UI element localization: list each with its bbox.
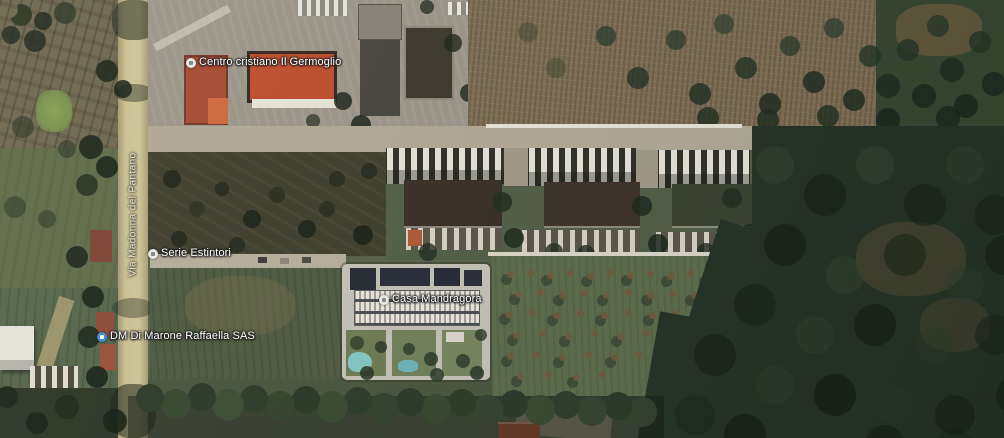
gray-building [358,4,402,40]
poi-casa-mandragora[interactable]: Casa Mandragora [379,293,482,306]
dry-brush-patch [856,222,966,296]
swimming-pool [348,352,372,372]
navy-roof [350,268,376,290]
row-house [404,180,502,228]
farm-building [90,230,112,262]
camper-parking-row [658,150,750,188]
store-icon-glyph [100,335,104,339]
scrubland [468,0,888,138]
poi-label: DM Di Marone Raffaella SAS [110,330,255,343]
tree-cluster [342,264,352,274]
orange-shed [408,230,422,246]
camper-parking-row [528,148,636,186]
white-awning [252,99,336,108]
dark-building [404,26,454,100]
white-patio [446,332,464,342]
parked-cars [258,257,267,263]
road-name-label: Via Madonna del Pantano [128,145,139,285]
tree-shadow [112,298,154,318]
boundary-wall [486,124,742,128]
tree-grove [0,388,118,438]
navy-roof [380,268,430,286]
field-left-middle [0,148,120,290]
store-poi-icon [97,332,107,342]
navy-roof [464,270,482,286]
driveway-gap [504,148,528,186]
poi-label: Centro cristiano Il Germoglio [199,56,341,69]
garden-sheds [522,230,640,252]
business-poi-icon [148,249,158,259]
dry-brush-patch [896,4,982,56]
poi-label: Casa Mandragora [392,293,482,306]
parking-lot [298,0,348,16]
white-roof-building [0,326,34,370]
bare-soil-patch [185,276,295,336]
dark-field [148,152,386,256]
camper-parking-row [386,148,504,184]
swimming-pool [398,360,418,372]
poi-label: Serie Estintori [161,247,231,260]
dry-brush-patch [920,298,990,352]
business-icon-glyph [151,252,155,256]
poi-centro-cristiano[interactable]: Centro cristiano Il Germoglio [186,56,341,69]
row-house [672,184,752,228]
resort-compound [342,264,490,380]
lodging-icon-glyph [382,298,386,302]
parked-vehicles-row [30,366,78,388]
poi-dm-di-marone[interactable]: DM Di Marone Raffaella SAS [97,330,255,343]
building-annex [208,98,228,124]
tree-cluster [0,0,18,18]
church-poi-icon [186,58,196,68]
lodging-poi-icon [379,295,389,305]
tree-shadow-band [128,396,664,438]
farm-building [100,344,116,370]
poi-serie-estintori[interactable]: Serie Estintori [148,247,231,260]
dark-building [360,40,400,116]
row-house [544,182,640,228]
church-icon-glyph [189,61,193,65]
satellite-map[interactable]: Centro cristiano Il Germoglio Serie Esti… [0,0,1004,438]
navy-roof [434,268,460,286]
green-field-patch [36,90,72,132]
